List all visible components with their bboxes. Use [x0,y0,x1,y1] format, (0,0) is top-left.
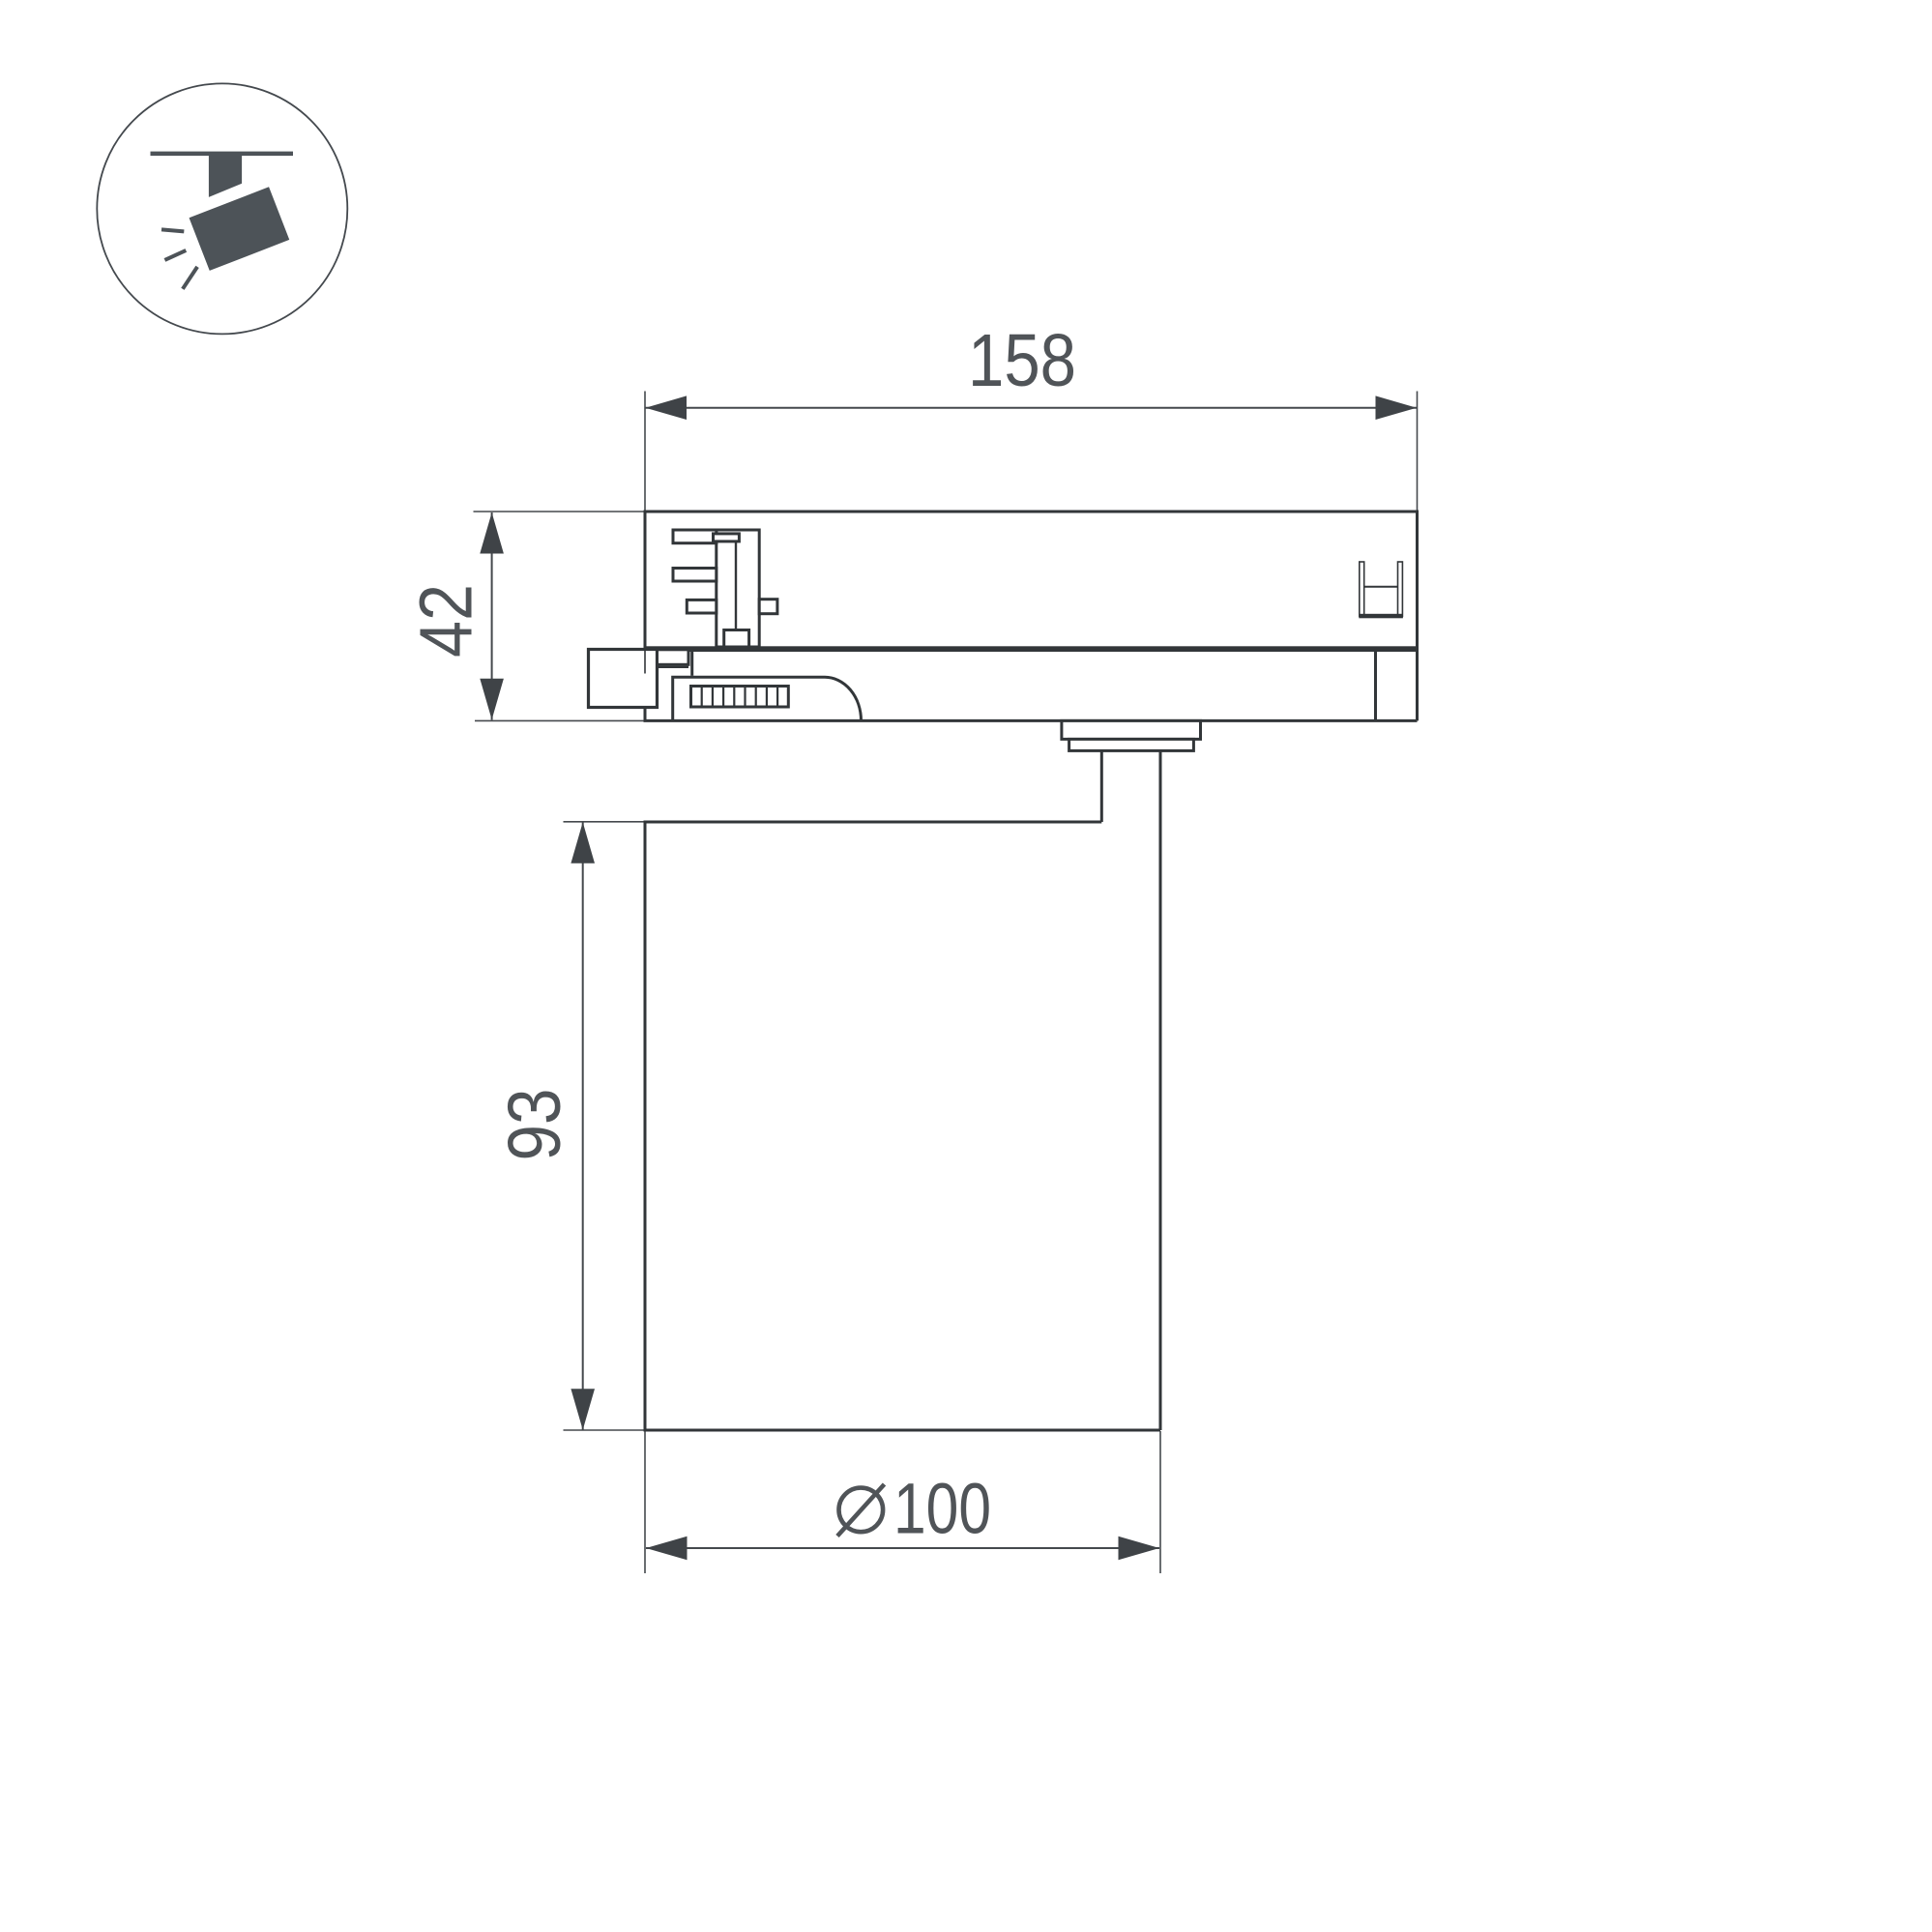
svg-text:93: 93 [493,1089,576,1161]
svg-text:42: 42 [405,584,488,658]
svg-text:158: 158 [968,319,1076,402]
svg-text:100: 100 [893,1469,991,1549]
